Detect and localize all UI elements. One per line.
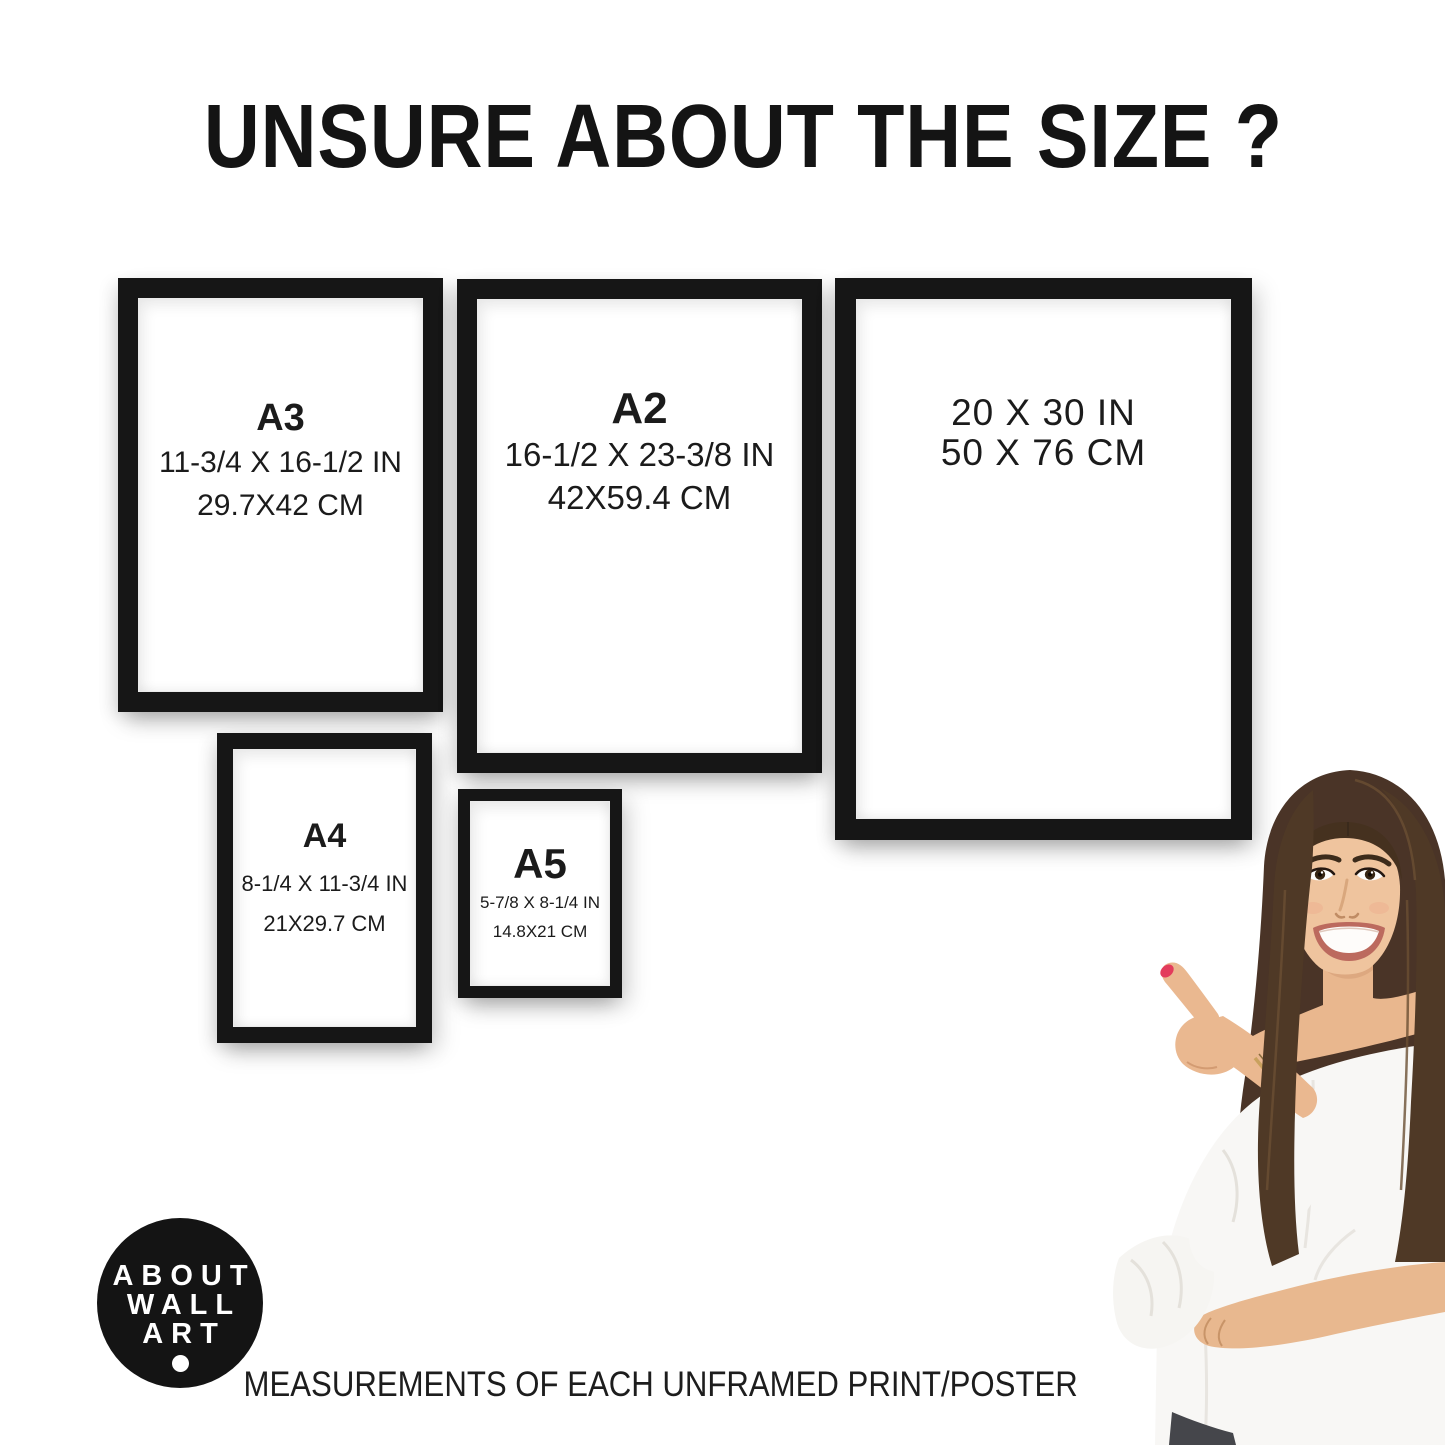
size-guide-poster: UNSURE ABOUT THE SIZE ? A3 11-3/4 X 16-1… [0,0,1445,1445]
size-frame-a4: A4 8-1/4 X 11-3/4 IN 21X29.7 CM [217,733,432,1043]
size-inches: 11-3/4 X 16-1/2 IN [159,441,402,484]
size-centimeters: 21X29.7 CM [242,904,408,944]
size-inches: 5-7/8 X 8-1/4 IN [480,888,600,917]
size-inches: 8-1/4 X 11-3/4 IN [242,864,408,904]
page-title: UNSURE ABOUT THE SIZE ? [0,92,1445,182]
size-label: A3 [159,395,402,441]
brand-logo-text-line1: ABOUT [104,1262,255,1291]
size-frame-a3: A3 11-3/4 X 16-1/2 IN 29.7X42 CM [118,278,443,712]
frame-mat: A2 16-1/2 X 23-3/8 IN 42X59.4 CM [477,299,802,753]
frame-mat: 20 X 30 IN 50 X 76 CM [856,299,1231,819]
frame-mat: A4 8-1/4 X 11-3/4 IN 21X29.7 CM [233,749,416,1027]
frame-mat: A5 5-7/8 X 8-1/4 IN 14.8X21 CM [470,801,610,986]
size-label: A4 [242,816,408,856]
size-frame-a5: A5 5-7/8 X 8-1/4 IN 14.8X21 CM [458,789,622,998]
frame-size-text: A3 11-3/4 X 16-1/2 IN 29.7X42 CM [159,395,402,527]
size-centimeters: 50 X 76 CM [941,433,1146,473]
size-centimeters: 14.8X21 CM [480,917,600,946]
frame-size-text: A2 16-1/2 X 23-3/8 IN 42X59.4 CM [505,385,775,519]
size-inches: 20 X 30 IN [941,393,1146,433]
brand-logo: ABOUT WALL ART [97,1218,263,1388]
size-label: A5 [480,842,600,886]
size-centimeters: 42X59.4 CM [505,476,775,519]
pointing-woman-photo [1055,770,1445,1445]
frame-size-text: 20 X 30 IN 50 X 76 CM [941,393,1146,473]
brand-logo-text-line2: WALL [119,1291,241,1320]
page-title-text: UNSURE ABOUT THE SIZE ? [204,92,1283,182]
brand-logo-text-line3: ART [134,1320,226,1349]
size-frame-a2: A2 16-1/2 X 23-3/8 IN 42X59.4 CM [457,279,822,773]
caption-text: MEASUREMENTS OF EACH UNFRAMED PRINT/POST… [244,1367,1078,1402]
size-frame-20x30: 20 X 30 IN 50 X 76 CM [835,278,1252,840]
frame-mat: A3 11-3/4 X 16-1/2 IN 29.7X42 CM [138,298,423,692]
size-inches: 16-1/2 X 23-3/8 IN [505,433,775,476]
size-centimeters: 29.7X42 CM [159,484,402,527]
frame-size-text: A5 5-7/8 X 8-1/4 IN 14.8X21 CM [480,842,600,946]
frame-size-text: A4 8-1/4 X 11-3/4 IN 21X29.7 CM [242,816,408,944]
size-label: A2 [505,385,775,433]
